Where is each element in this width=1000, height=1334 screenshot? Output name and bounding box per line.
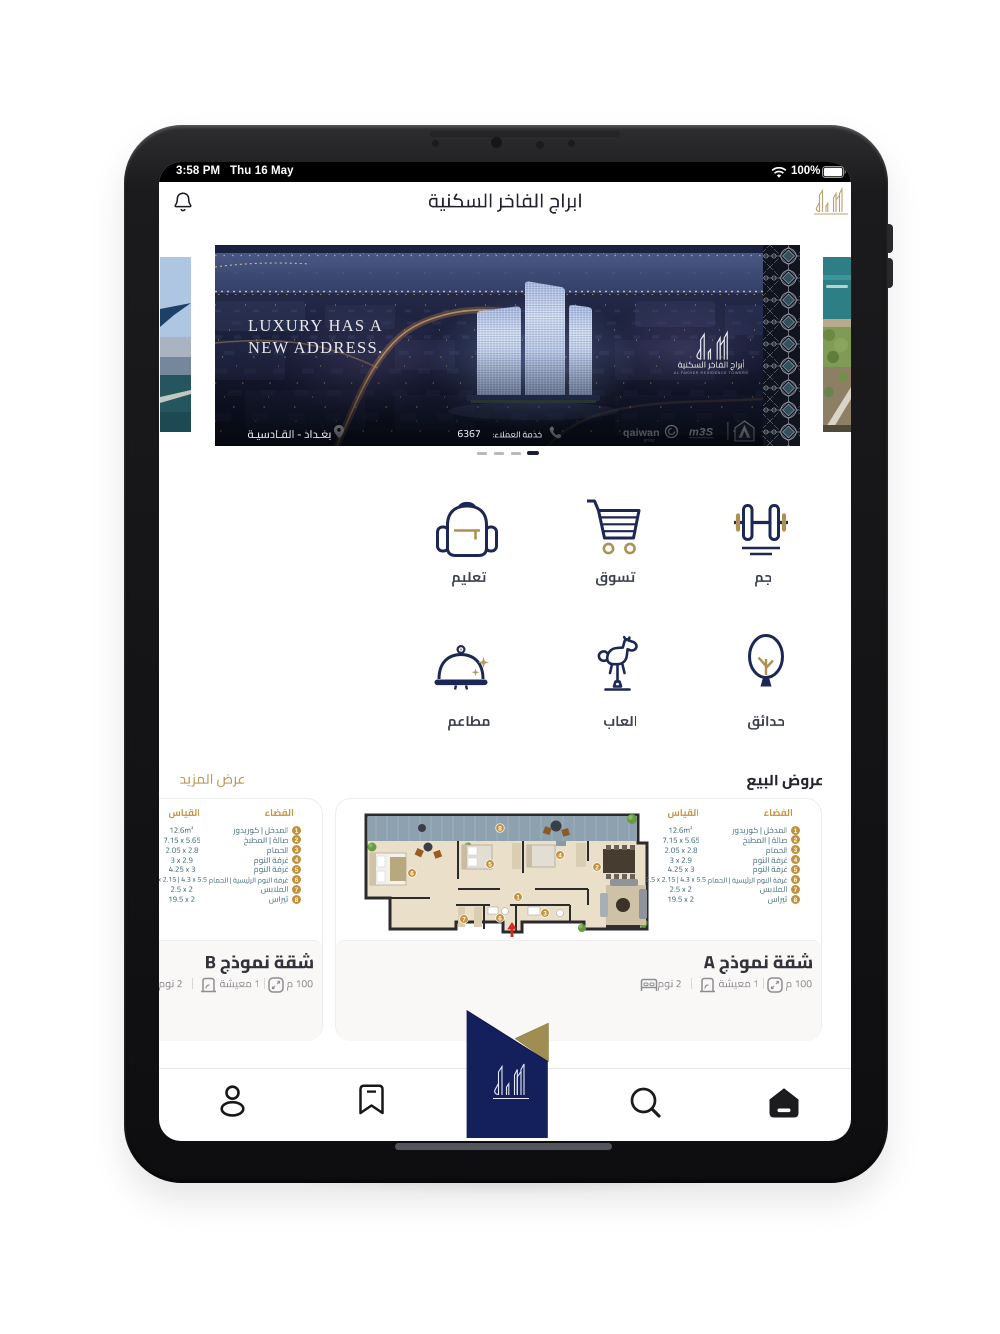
svg-text:1: 1: [294, 827, 298, 834]
svg-text:4: 4: [558, 852, 562, 859]
svg-text:5: 5: [488, 861, 492, 868]
svg-text:3: 3: [793, 847, 797, 854]
svg-text:LUXURY HAS A: LUXURY HAS A: [248, 316, 383, 335]
svg-text:7: 7: [793, 886, 797, 893]
svg-text:3: 3: [543, 910, 547, 917]
svg-text:6: 6: [410, 870, 414, 877]
svg-text:8: 8: [498, 825, 502, 832]
svg-text:2: 2: [595, 864, 599, 871]
svg-text:8: 8: [793, 896, 797, 903]
svg-text:1: 1: [516, 894, 520, 901]
svg-text:7: 7: [294, 886, 298, 893]
svg-text:1: 1: [793, 827, 797, 834]
svg-text:2: 2: [294, 837, 298, 844]
svg-text:6: 6: [498, 915, 502, 922]
svg-text:6: 6: [793, 877, 797, 884]
svg-text:4: 4: [793, 857, 797, 864]
svg-text:4: 4: [294, 857, 298, 864]
svg-text:3: 3: [294, 847, 298, 854]
svg-text:2: 2: [793, 837, 797, 844]
svg-text:8: 8: [294, 896, 298, 903]
svg-text:6: 6: [294, 877, 298, 884]
svg-text:7: 7: [462, 916, 466, 923]
svg-text:5: 5: [793, 867, 797, 874]
svg-text:5: 5: [294, 867, 298, 874]
